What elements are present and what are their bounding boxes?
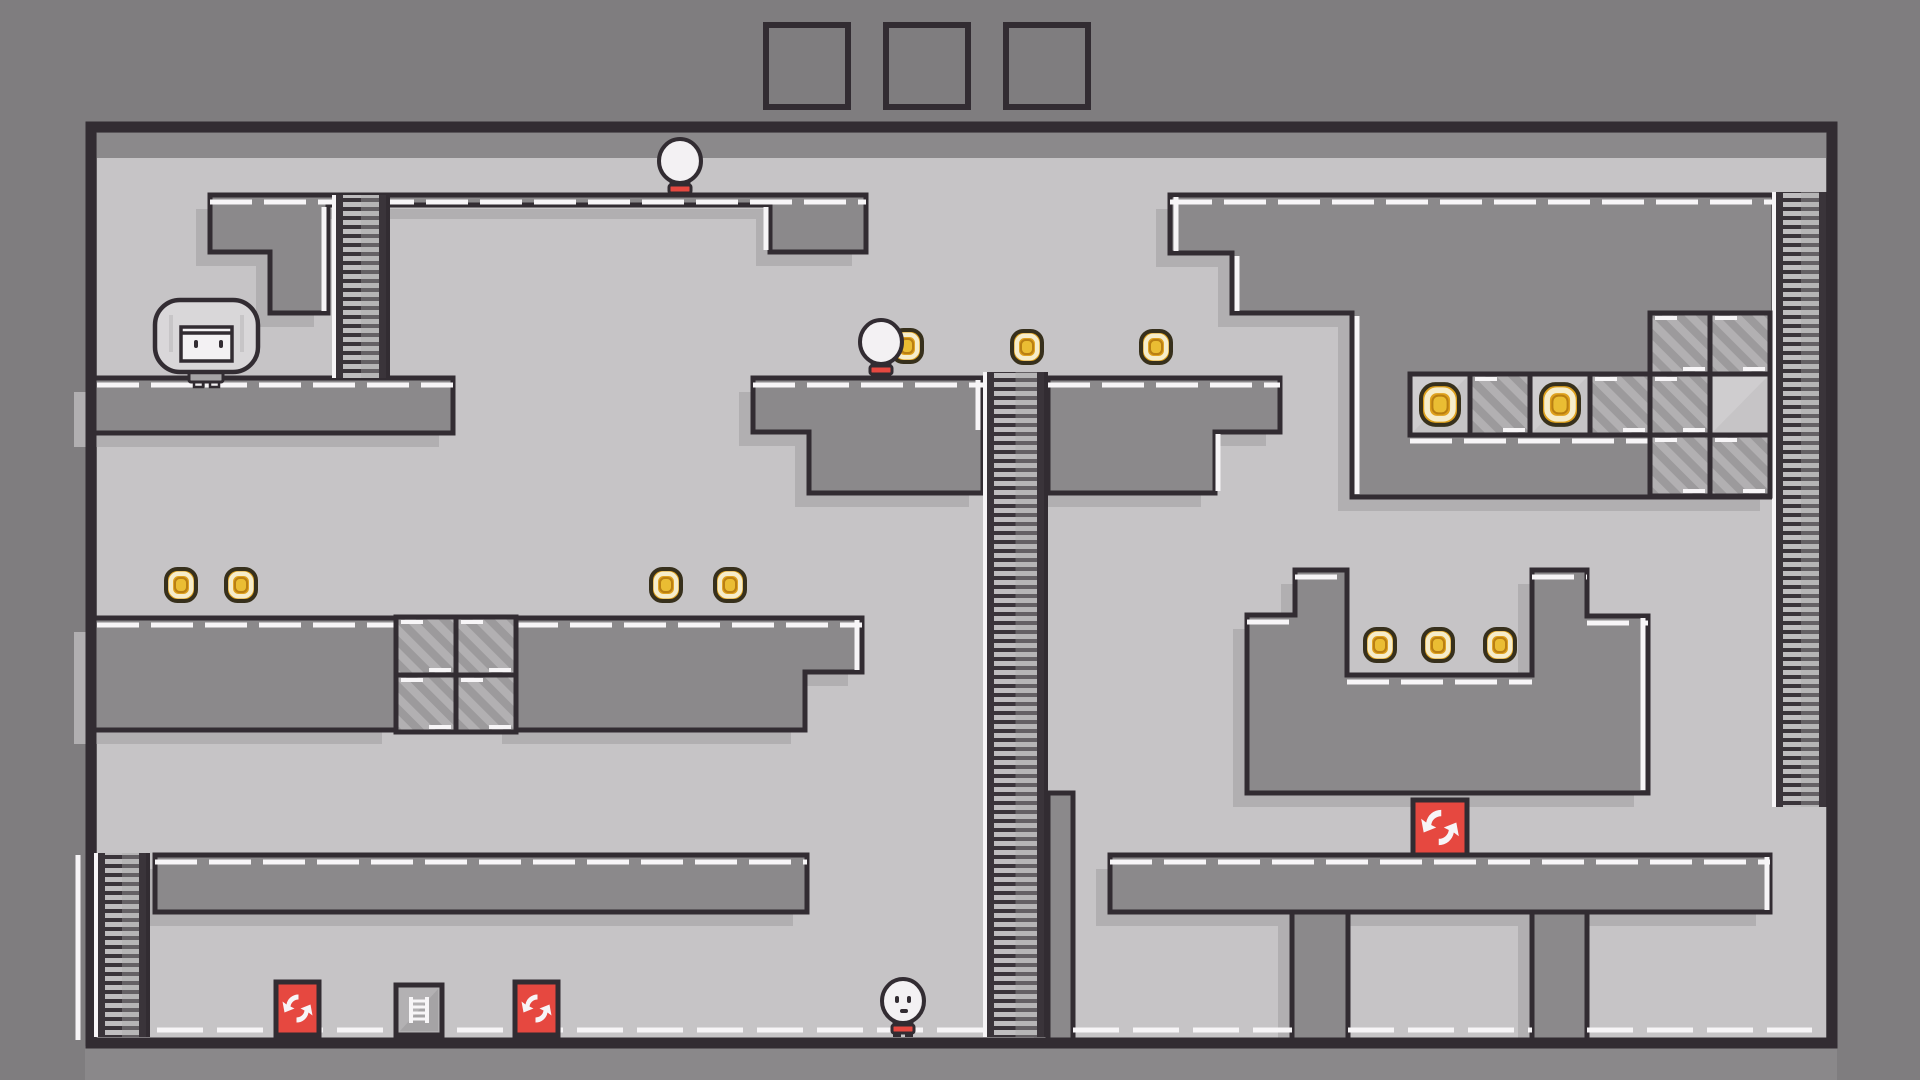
striped-crate-tile: [396, 617, 456, 675]
ladder-item-tile[interactable]: [396, 985, 442, 1035]
coin: [1141, 331, 1171, 363]
eye: [895, 996, 899, 1003]
striped-crate-tile: [456, 617, 516, 675]
platform-window-pillar-b: [1532, 912, 1587, 1040]
striped-crate-tile: [1710, 313, 1770, 374]
platform-bottom-pillar-mid: [1048, 793, 1073, 1040]
eye: [907, 996, 911, 1003]
striped-crate-tile: [456, 675, 516, 732]
ladder-bottomleft[interactable]: [94, 853, 150, 1037]
striped-crate-tile: [1650, 374, 1710, 435]
striped-crate-tile: [1710, 435, 1770, 496]
coin: [166, 569, 196, 601]
ladder-topleft[interactable]: [332, 195, 390, 378]
platform-midleft-platform-a: [88, 618, 396, 730]
coin: [1485, 629, 1515, 661]
swap-item-tile[interactable]: [515, 982, 558, 1035]
striped-crate-tile: [1590, 374, 1650, 435]
bottom-band: [85, 1046, 1837, 1080]
mouth: [900, 1009, 908, 1013]
striped-crate-tile: [396, 675, 456, 732]
coin: [651, 569, 681, 601]
game-viewport[interactable]: [0, 0, 1920, 1080]
coin: [715, 569, 745, 601]
coin: [1541, 384, 1579, 425]
coin: [1423, 629, 1453, 661]
eye: [194, 340, 198, 348]
coin-tile: [1530, 374, 1590, 435]
platform-window-pillar-a: [1292, 912, 1348, 1040]
ladder-tall-middle[interactable]: [983, 372, 1048, 1037]
coin: [1012, 331, 1042, 363]
coin: [1365, 629, 1395, 661]
swap-item-tile[interactable]: [1413, 800, 1467, 855]
coin: [1421, 384, 1459, 425]
coin-tile: [1410, 374, 1470, 435]
ladder-right[interactable]: [1772, 192, 1830, 807]
striped-crate-tile: [1470, 374, 1530, 435]
ceiling-band: [97, 133, 1826, 158]
striped-crate-tile: [1650, 435, 1710, 496]
coin: [226, 569, 256, 601]
striped-crate-tile: [1650, 313, 1710, 374]
plain-tile: [1710, 374, 1770, 435]
swap-item-tile[interactable]: [276, 982, 319, 1035]
eye: [219, 340, 223, 348]
